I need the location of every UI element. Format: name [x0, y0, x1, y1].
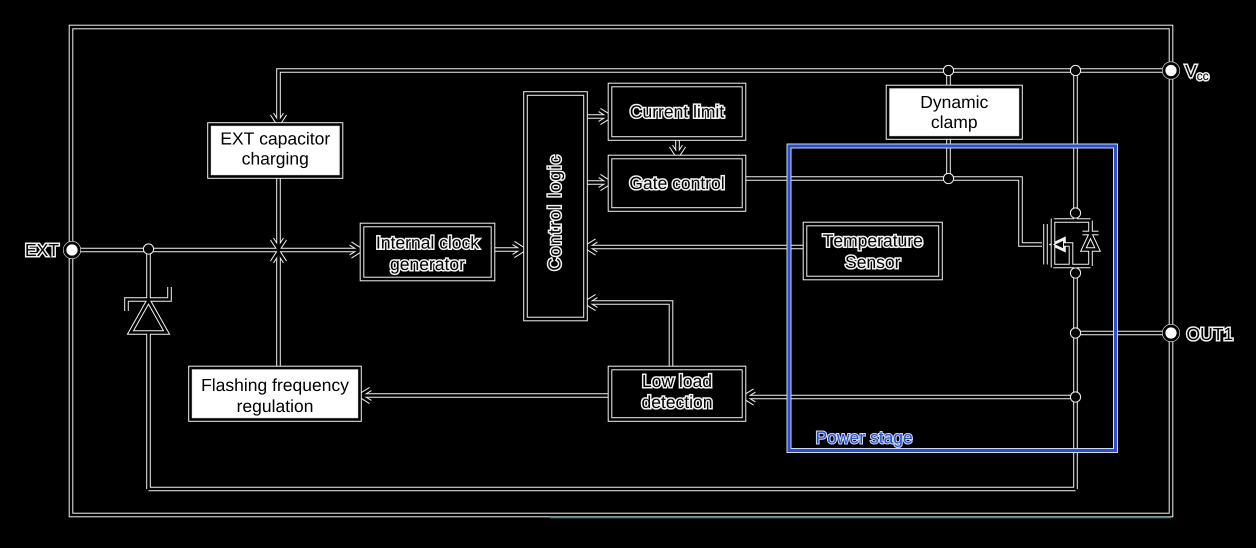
svg-text:Power stage: Power stage: [816, 428, 913, 448]
